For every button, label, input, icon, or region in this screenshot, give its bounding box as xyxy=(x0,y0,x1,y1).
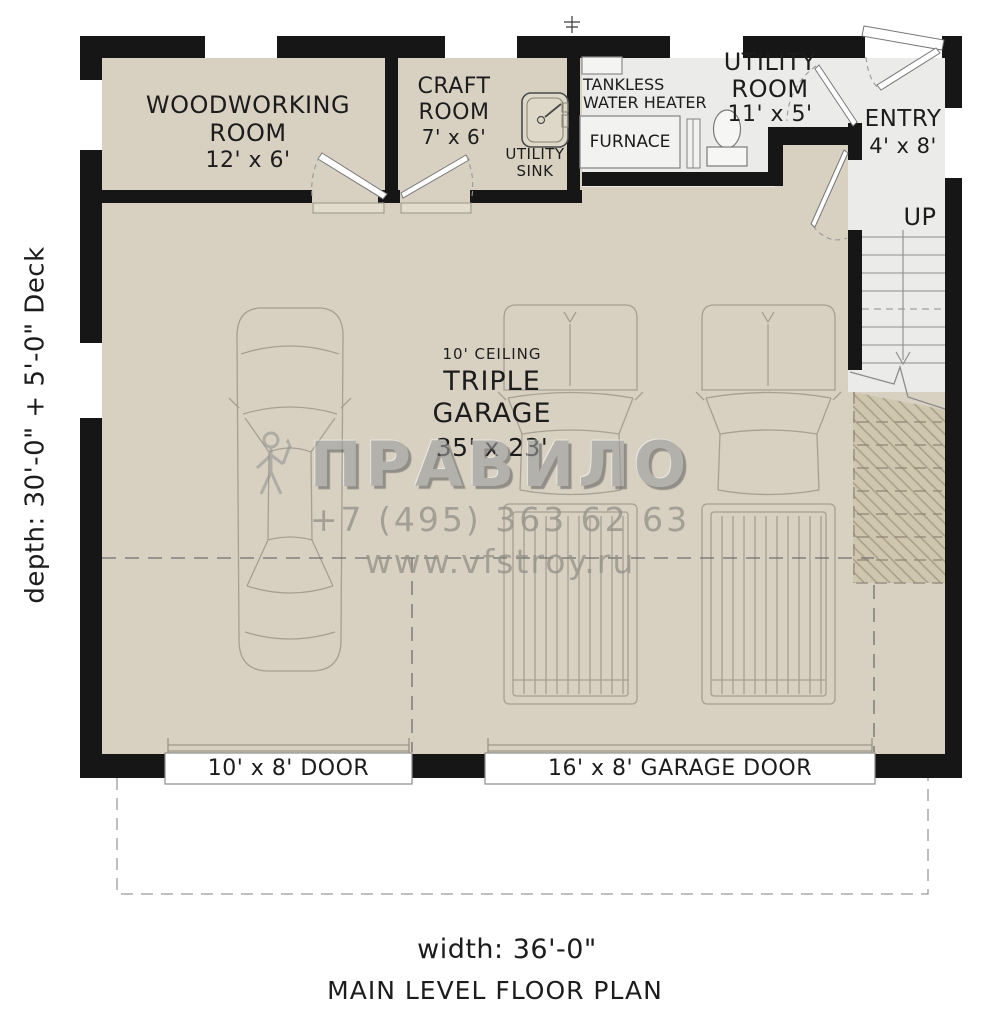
room-name-line: UTILITY xyxy=(714,49,826,76)
plan-title: MAIN LEVEL FLOOR PLAN xyxy=(245,976,745,1006)
wall-utility-top-seg xyxy=(783,127,848,145)
room-dims: 7' x 6' xyxy=(398,126,510,150)
room-name-line: TRIPLE GARAGE xyxy=(380,366,604,430)
floor-plan-page: WOODWORKING ROOM 12' x 6' CRAFT ROOM 7' … xyxy=(0,0,1000,1011)
plus-marker xyxy=(564,16,580,33)
tankless-water-heater xyxy=(582,57,622,74)
wall-wood-bottom xyxy=(102,190,312,203)
wall-entry-left-lower xyxy=(848,230,862,370)
craft-room-label: CRAFT ROOM 7' x 6' xyxy=(398,74,510,150)
utility-sink-label: UTILITY SINK xyxy=(497,146,573,181)
wall-utility-step xyxy=(768,127,783,186)
room-dims: 11' x 5' xyxy=(714,103,826,128)
stairs-up-label: UP xyxy=(896,203,944,231)
room-name-line: ROOM xyxy=(714,76,826,103)
wall-craft-bottom xyxy=(470,190,582,203)
window-left-1 xyxy=(80,80,102,150)
wood-door-threshold xyxy=(313,203,384,213)
room-name-line: ENTRY xyxy=(860,106,946,134)
wall-wood-craft-divider xyxy=(385,58,398,203)
toilet-tank xyxy=(707,147,747,166)
deck-outline-dashed xyxy=(117,778,928,894)
window-top-2 xyxy=(445,36,517,58)
width-dimension-label: width: 36'-0" xyxy=(307,934,707,966)
entry-label: ENTRY 4' x 8' xyxy=(860,106,946,159)
craft-door-threshold xyxy=(401,203,471,213)
ceiling-note: 10' CEILING xyxy=(380,346,604,364)
left-garage-door-label: 10' x 8' DOOR xyxy=(165,753,412,784)
window-left-2 xyxy=(80,343,102,418)
wall-utility-bottom xyxy=(582,172,775,186)
watermark-phone: +7 (495) 363 62 63 xyxy=(300,500,700,539)
window-top-1 xyxy=(205,36,277,58)
depth-dimension-label: depth: 30'-0" + 5'-0" Deck xyxy=(21,246,52,603)
window-right-1 xyxy=(945,108,962,178)
watermark-brand: ПРАВ ИЛО xyxy=(250,428,750,501)
wall-craft-utility-divider xyxy=(567,58,580,203)
room-dims: 4' x 8' xyxy=(860,134,946,159)
room-name-line: ROOM xyxy=(398,100,510,126)
room-name-line: CRAFT xyxy=(398,74,510,100)
woodworking-room-label: WOODWORKING ROOM 12' x 6' xyxy=(128,91,368,174)
utility-room-label: UTILITY ROOM 11' x 5' xyxy=(714,49,826,127)
room-dims: 12' x 6' xyxy=(128,148,368,174)
watermark-site: www.vfstroy.ru xyxy=(300,542,700,581)
garage-door-label: 16' x 8' GARAGE DOOR xyxy=(485,753,875,784)
room-name-line: ROOM xyxy=(128,119,368,147)
hatch-area xyxy=(853,392,945,583)
room-name-line: WOODWORKING xyxy=(128,91,368,119)
furnace-label: FURNACE xyxy=(580,116,680,168)
